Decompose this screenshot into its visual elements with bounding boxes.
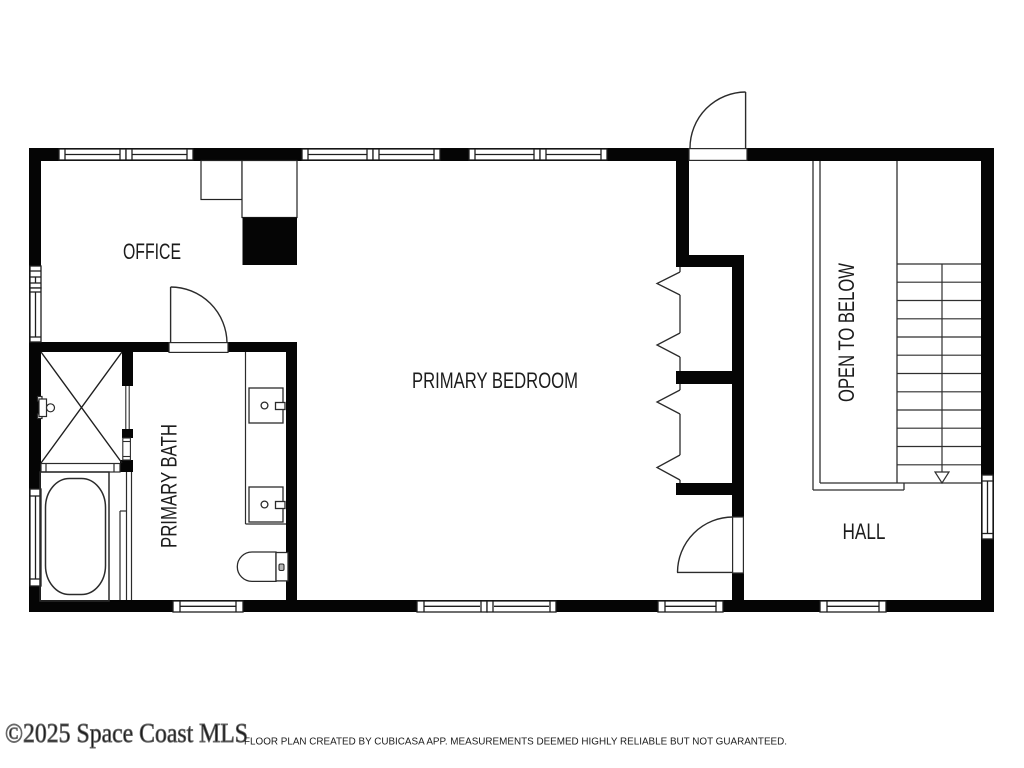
svg-text:OPEN TO BELOW: OPEN TO BELOW <box>834 262 859 402</box>
svg-text:HALL: HALL <box>843 519 886 544</box>
svg-text:©2025 Space Coast MLS: ©2025 Space Coast MLS <box>5 718 248 748</box>
svg-text:PRIMARY BEDROOM: PRIMARY BEDROOM <box>412 368 578 393</box>
svg-text:OFFICE: OFFICE <box>123 239 181 264</box>
svg-text:FLOOR PLAN CREATED BY CUBICASA: FLOOR PLAN CREATED BY CUBICASA APP. MEAS… <box>244 737 787 748</box>
svg-text:PRIMARY BATH: PRIMARY BATH <box>157 424 182 548</box>
